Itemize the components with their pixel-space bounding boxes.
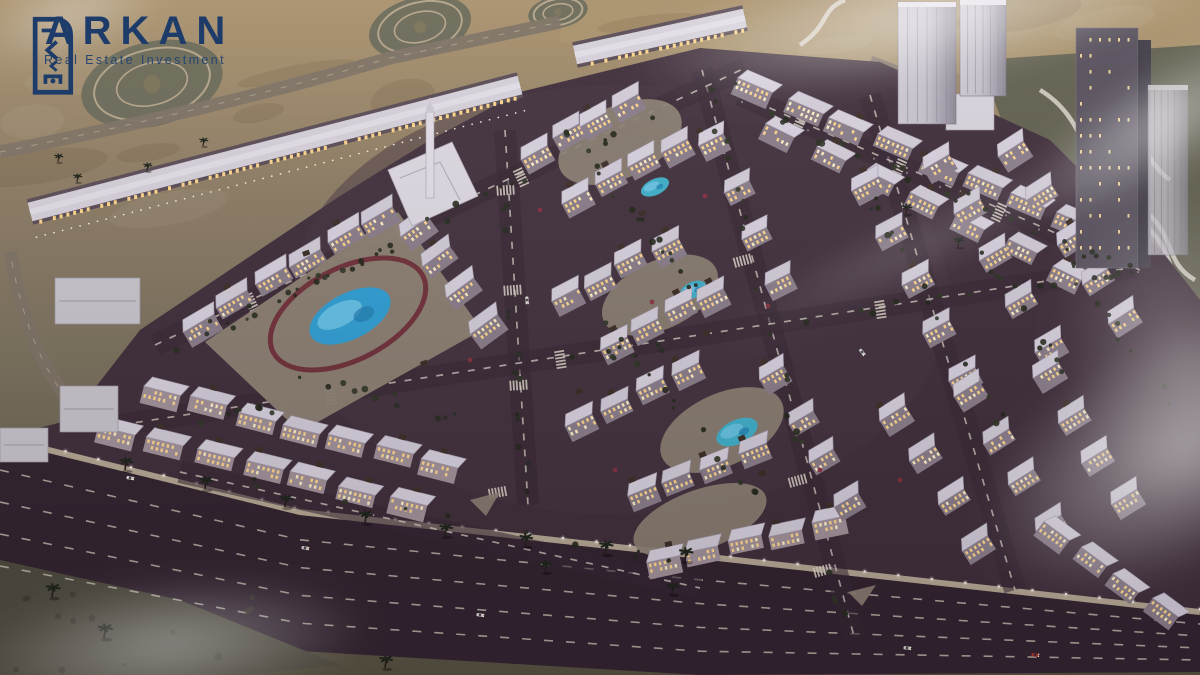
tower bbox=[960, 0, 1006, 96]
compound-scene bbox=[0, 0, 1200, 675]
flower-shrub bbox=[766, 304, 771, 309]
arkan-logo-mark bbox=[26, 8, 78, 96]
tower bbox=[1076, 28, 1151, 268]
flower-shrub bbox=[613, 468, 618, 473]
tower bbox=[898, 2, 956, 124]
flower-shrub bbox=[703, 194, 708, 199]
brand-logo: ARKAN Real Estate Investment bbox=[26, 8, 244, 67]
flower-shrub bbox=[538, 208, 543, 213]
aerial-render: ARKAN Real Estate Investment bbox=[0, 0, 1200, 675]
flower-shrub bbox=[650, 300, 655, 305]
flower-shrub bbox=[818, 468, 823, 473]
flower-shrub bbox=[468, 358, 473, 363]
tower bbox=[1148, 85, 1188, 255]
flower-shrub bbox=[898, 478, 903, 483]
